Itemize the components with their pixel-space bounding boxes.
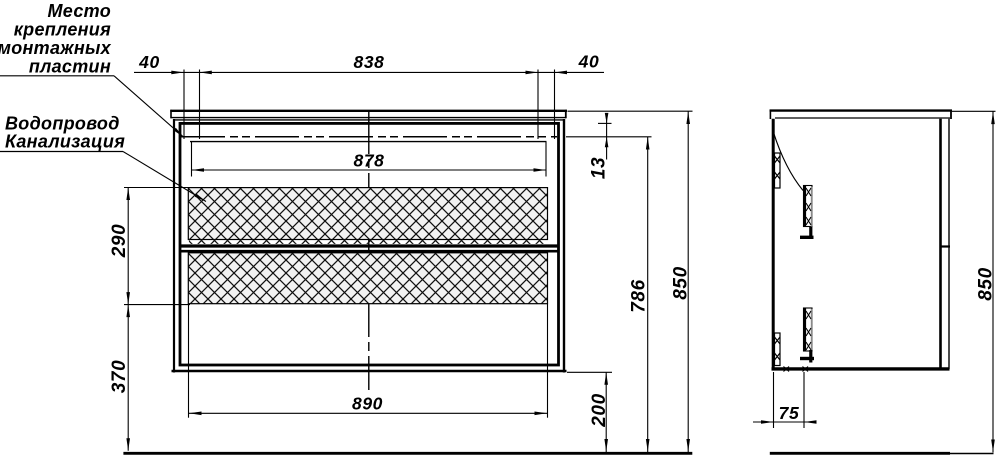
svg-text:пластин: пластин [29, 57, 111, 77]
svg-text:крепления: крепления [14, 20, 111, 40]
svg-text:786: 786 [629, 279, 650, 313]
svg-text:850: 850 [976, 267, 997, 301]
svg-text:монтажных: монтажных [0, 38, 112, 58]
svg-text:13: 13 [589, 157, 610, 179]
svg-text:40: 40 [578, 52, 600, 72]
svg-text:890: 890 [352, 394, 383, 414]
svg-text:370: 370 [109, 360, 130, 394]
svg-text:Канализация: Канализация [5, 132, 125, 152]
svg-text:75: 75 [779, 403, 800, 423]
svg-text:838: 838 [354, 52, 385, 72]
svg-text:290: 290 [109, 224, 130, 259]
svg-text:878: 878 [354, 151, 385, 171]
svg-text:40: 40 [138, 52, 160, 72]
svg-text:200: 200 [589, 393, 610, 428]
svg-text:850: 850 [671, 266, 692, 300]
svg-text:Водопровод: Водопровод [5, 114, 120, 134]
svg-text:Место: Место [48, 1, 112, 21]
